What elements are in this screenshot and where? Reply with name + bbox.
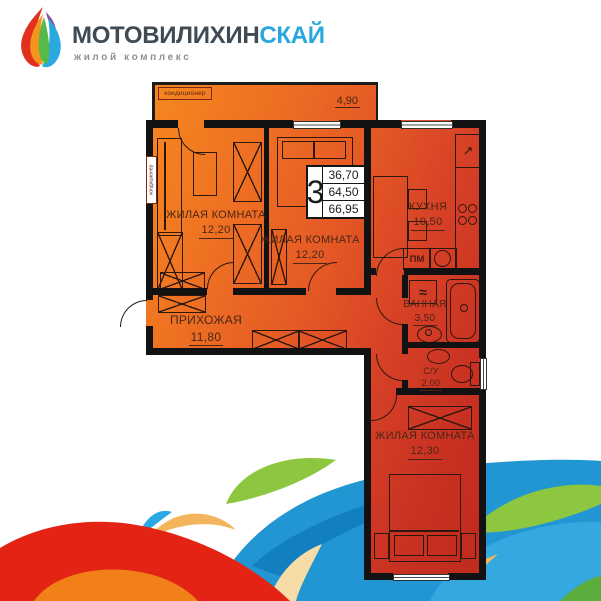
wall	[371, 268, 376, 275]
table	[193, 152, 217, 196]
apartment-info-box: 3 36,70 64,50 66,95	[306, 165, 366, 219]
room-area: 3,50	[413, 313, 438, 327]
window	[480, 358, 487, 390]
wall	[448, 573, 486, 580]
kitchen-sink	[434, 250, 451, 267]
room-label-hallway: ПРИХОЖАЯ 11,80	[160, 313, 252, 346]
wall	[404, 268, 486, 275]
wall	[152, 82, 378, 85]
wall	[233, 288, 306, 295]
area-values: 36,70 64,50 66,95	[323, 167, 364, 217]
dishwasher-box: ПМ	[403, 248, 431, 270]
bathtub-drain	[460, 304, 468, 312]
entry-door-arc	[120, 300, 147, 327]
room-label-living1: ЖИЛАЯ КОМНАТА 12,20	[166, 208, 266, 239]
flame-logo-icon	[13, 4, 69, 74]
wall	[152, 82, 155, 122]
floor-plan: ↗ ПМ ≈ кондиционер 4,90 кондиционер	[146, 82, 488, 582]
nightstand	[461, 533, 476, 559]
brand-accent: СКАЙ	[259, 22, 324, 49]
window	[401, 121, 453, 129]
wardrobe	[298, 330, 347, 350]
room-area: 2,00	[420, 378, 443, 390]
wc-sink	[427, 349, 450, 364]
room-area: 11,80	[189, 330, 224, 347]
wardrobe	[408, 406, 472, 430]
nightstand	[374, 533, 389, 559]
wall	[402, 348, 408, 354]
room-area: 12,20	[293, 248, 326, 263]
balcony-area-value: 4,90	[335, 95, 360, 108]
wall	[339, 120, 401, 128]
room-name: ЖИЛАЯ КОМНАТА	[375, 429, 475, 443]
balcony-area-label: 4,90	[296, 95, 360, 107]
brand-title: МОТОВИЛИХИНСКАЙ	[72, 22, 325, 50]
stove-burner	[468, 204, 477, 213]
pillow	[314, 141, 346, 159]
vent-arrow-icon: ↗	[455, 134, 481, 168]
room-name: ЖИЛАЯ КОМНАТА	[260, 233, 360, 247]
wall	[153, 288, 207, 295]
room-name: ПРИХОЖАЯ	[160, 313, 252, 329]
room-label-living2: ЖИЛАЯ КОМНАТА 12,20	[260, 233, 360, 264]
air-conditioner-label: кондиционер	[158, 87, 212, 100]
wall	[479, 388, 486, 580]
brand-main: МОТОВИЛИХИН	[72, 22, 259, 49]
room-name: ЖИЛАЯ КОМНАТА	[166, 208, 266, 222]
living-area-value: 36,70	[322, 166, 365, 184]
apartment-area-value: 64,50	[322, 183, 365, 201]
air-conditioner-wall-label: кондиционер	[146, 156, 157, 204]
wall	[364, 348, 371, 580]
rooms-count: 3	[308, 167, 323, 217]
pillow	[427, 535, 457, 556]
room-area: 10,50	[411, 215, 444, 230]
wardrobe	[233, 142, 262, 202]
room-label-wc: С/У 2,00	[408, 366, 454, 391]
page: МОТОВИЛИХИНСКАЙ жилой комплекс	[0, 0, 601, 601]
room-label-living3: ЖИЛАЯ КОМНАТА 12,30	[375, 429, 475, 460]
wall	[204, 120, 293, 128]
window	[393, 574, 450, 581]
toilet	[451, 365, 473, 383]
room-label-kitchen: КУХНЯ 10,50	[388, 200, 468, 231]
wardrobe	[158, 295, 206, 313]
window	[293, 121, 341, 129]
brand-subtitle: жилой комплекс	[74, 52, 191, 63]
stove-burner	[468, 216, 477, 225]
room-area: 12,30	[408, 444, 441, 459]
bathroom-sink	[425, 329, 432, 336]
wall	[479, 120, 486, 358]
total-area-value: 66,95	[322, 200, 365, 218]
room-name: КУХНЯ	[388, 200, 468, 214]
room-name: С/У	[408, 366, 454, 377]
wall	[146, 120, 153, 300]
wall	[146, 348, 371, 355]
wall	[364, 573, 393, 580]
wall	[376, 82, 379, 122]
wall	[402, 275, 408, 298]
pillow	[394, 535, 424, 556]
logo: МОТОВИЛИХИНСКАЙ жилой комплекс	[0, 0, 400, 80]
room-label-bathroom: ВАННАЯ 3,50	[396, 299, 454, 326]
room-area: 12,20	[199, 223, 232, 238]
pillow	[282, 141, 314, 159]
bed	[389, 530, 459, 532]
wall	[402, 342, 486, 348]
room-name: ВАННАЯ	[396, 299, 454, 312]
wardrobe	[252, 330, 300, 350]
